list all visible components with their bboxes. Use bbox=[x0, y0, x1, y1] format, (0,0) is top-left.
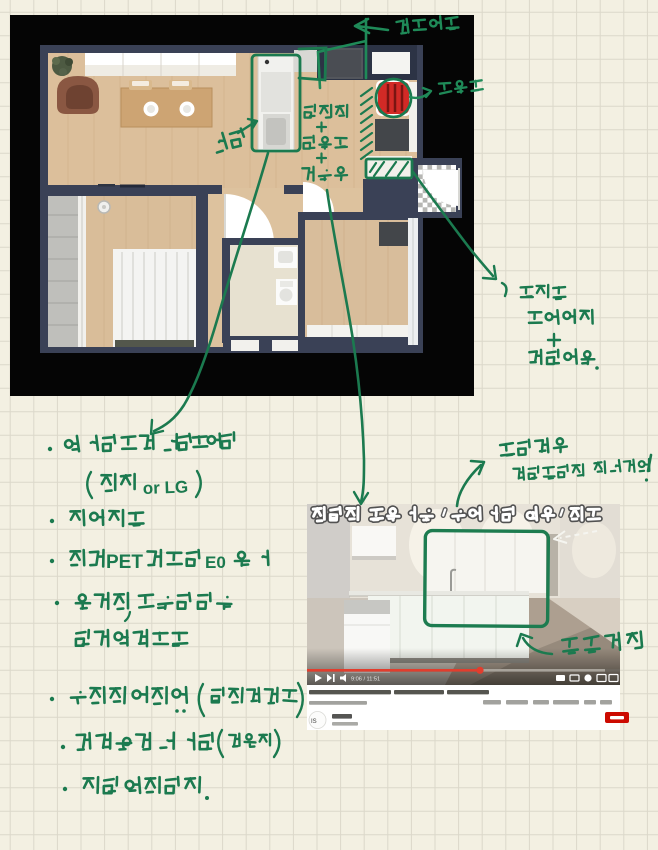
svg-text:9:06 / 11:51: 9:06 / 11:51 bbox=[351, 677, 380, 683]
svg-text:IS: IS bbox=[311, 719, 317, 725]
svg-text:PET: PET bbox=[106, 552, 143, 573]
svg-text:E0: E0 bbox=[205, 553, 226, 572]
svg-text:or LG: or LG bbox=[142, 477, 188, 498]
